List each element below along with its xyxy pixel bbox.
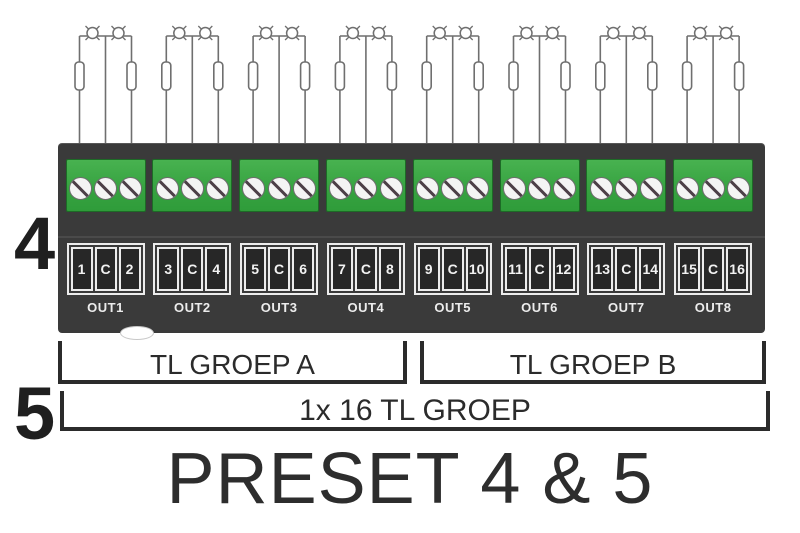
out-label: OUT1	[67, 300, 145, 315]
screw-icon	[676, 177, 699, 200]
ballast-icon	[301, 62, 310, 90]
terminal-cell: 2	[119, 247, 141, 291]
green-terminal-block	[413, 159, 493, 212]
ballast-icon	[561, 62, 570, 90]
ballast-icon	[214, 62, 223, 90]
screw-slot	[442, 178, 464, 200]
lamp-icon	[172, 26, 186, 40]
terminal-cell: C	[355, 247, 377, 291]
lamp-icon	[632, 26, 646, 40]
screw-icon	[268, 177, 291, 200]
screw-icon	[553, 177, 576, 200]
ballast-icon	[422, 62, 431, 90]
out-label: OUT4	[327, 300, 405, 315]
screw-icon	[416, 177, 439, 200]
screw-slot	[330, 178, 352, 200]
lamp-circuit-group	[335, 26, 396, 150]
screw-icon	[727, 177, 750, 200]
screw-icon	[242, 177, 265, 200]
screw-slot	[268, 178, 290, 200]
terminal-group: 5C6	[240, 243, 318, 295]
terminal-cell: 10	[466, 247, 488, 291]
screw-icon	[119, 177, 142, 200]
screw-slot	[529, 178, 551, 200]
terminal-cell: C	[268, 247, 290, 291]
lamp-icon	[86, 26, 100, 40]
screw-icon	[329, 177, 352, 200]
lamp-icon	[606, 26, 620, 40]
group-b-label: TL GROEP B	[510, 351, 677, 380]
screw-slot	[503, 178, 525, 200]
terminal-group: 11C12	[501, 243, 579, 295]
terminal-cell: 15	[678, 247, 700, 291]
screw-icon	[590, 177, 613, 200]
screw-slot	[641, 178, 663, 200]
lamp-icon	[433, 26, 447, 40]
screw-slot	[120, 178, 142, 200]
green-terminal-block	[152, 159, 232, 212]
ballast-icon	[683, 62, 692, 90]
out-label: OUT3	[240, 300, 318, 315]
lamp-icon	[112, 26, 126, 40]
terminal-cell: C	[95, 247, 117, 291]
terminal-group: 9C10	[414, 243, 492, 295]
terminal-cell: 4	[205, 247, 227, 291]
lamp-icon	[546, 26, 560, 40]
screw-slot	[181, 178, 203, 200]
terminal-cell: C	[529, 247, 551, 291]
lamp-icon	[259, 26, 273, 40]
lamp-circuit-group	[75, 26, 136, 150]
screw-icon	[156, 177, 179, 200]
green-terminal-block	[326, 159, 406, 212]
terminal-cell: 3	[157, 247, 179, 291]
terminal-group: 13C14	[587, 243, 665, 295]
screw-icon	[615, 177, 638, 200]
device-seam	[58, 236, 765, 238]
out-label: OUT7	[587, 300, 665, 315]
lamp-icon	[459, 26, 473, 40]
lamp-icon	[285, 26, 299, 40]
wiring-diagram: 1C23C45C67C89C1011C1213C1415C16 OUT1OUT2…	[0, 0, 800, 533]
green-terminal-block	[66, 159, 146, 212]
bracket-full-group: 1x 16 TL GROEP	[60, 391, 770, 431]
bracket-group-b: TL GROEP B	[420, 341, 766, 384]
device-notch	[120, 326, 154, 340]
lamp-icon	[346, 26, 360, 40]
terminal-cell: 14	[639, 247, 661, 291]
screw-icon	[441, 177, 464, 200]
screw-icon	[380, 177, 403, 200]
screw-slot	[156, 178, 178, 200]
screw-slot	[677, 178, 699, 200]
bracket-group-a: TL GROEP A	[58, 341, 407, 384]
screw-slot	[293, 178, 315, 200]
group-a-label: TL GROEP A	[150, 351, 315, 380]
terminal-cell: 5	[244, 247, 266, 291]
lamp-icon	[520, 26, 534, 40]
screw-icon	[69, 177, 92, 200]
terminal-group: 7C8	[327, 243, 405, 295]
screw-slot	[702, 178, 724, 200]
screw-slot	[467, 178, 489, 200]
terminal-cell: 12	[553, 247, 575, 291]
wiring-layer	[0, 0, 800, 150]
green-terminal-block	[500, 159, 580, 212]
green-terminal-block	[239, 159, 319, 212]
ballast-icon	[735, 62, 744, 90]
lamp-circuit-group	[509, 26, 570, 150]
screw-icon	[293, 177, 316, 200]
terminal-cell: 11	[505, 247, 527, 291]
terminal-group: 3C4	[153, 243, 231, 295]
terminal-cell: C	[615, 247, 637, 291]
screw-icon	[702, 177, 725, 200]
ballast-icon	[162, 62, 171, 90]
lamp-circuit-group	[596, 26, 657, 150]
screw-icon	[94, 177, 117, 200]
ballast-icon	[596, 62, 605, 90]
out-label: OUT8	[674, 300, 752, 315]
screw-slot	[355, 178, 377, 200]
terminal-cell: 7	[331, 247, 353, 291]
lamp-circuit-group	[162, 26, 223, 150]
terminal-group: 1C2	[67, 243, 145, 295]
terminal-cell: C	[702, 247, 724, 291]
screw-icon	[181, 177, 204, 200]
terminal-cell: C	[442, 247, 464, 291]
ballast-icon	[648, 62, 657, 90]
screw-slot	[590, 178, 612, 200]
lamp-circuit-group	[422, 26, 483, 150]
screw-slot	[727, 178, 749, 200]
ballast-icon	[509, 62, 518, 90]
lamp-icon	[719, 26, 733, 40]
lamp-icon	[198, 26, 212, 40]
preset-number-4: 4	[14, 207, 55, 281]
preset-number-5: 5	[14, 377, 55, 451]
terminal-cell: 6	[292, 247, 314, 291]
screw-icon	[466, 177, 489, 200]
lamp-icon	[372, 26, 386, 40]
terminal-cell: 13	[591, 247, 613, 291]
ballast-icon	[474, 62, 483, 90]
ballast-icon	[249, 62, 258, 90]
screw-slot	[554, 178, 576, 200]
terminal-cell: 9	[418, 247, 440, 291]
dimmer-device: 1C23C45C67C89C1011C1213C1415C16 OUT1OUT2…	[58, 143, 765, 333]
page-title: PRESET 4 & 5	[20, 443, 800, 515]
lamp-circuit-group	[683, 26, 744, 150]
screw-icon	[354, 177, 377, 200]
ballast-icon	[127, 62, 136, 90]
full-group-label: 1x 16 TL GROEP	[299, 396, 531, 427]
out-label: OUT5	[414, 300, 492, 315]
terminal-cell: 8	[379, 247, 401, 291]
ballast-icon	[387, 62, 396, 90]
screw-icon	[206, 177, 229, 200]
ballast-icon	[75, 62, 84, 90]
out-label: OUT6	[501, 300, 579, 315]
lamp-icon	[693, 26, 707, 40]
terminal-cell: 16	[726, 247, 748, 291]
screw-icon	[503, 177, 526, 200]
screw-slot	[416, 178, 438, 200]
screw-slot	[207, 178, 229, 200]
screw-icon	[640, 177, 663, 200]
terminal-group: 15C16	[674, 243, 752, 295]
screw-slot	[69, 178, 91, 200]
screw-slot	[95, 178, 117, 200]
green-terminal-block	[586, 159, 666, 212]
screw-slot	[615, 178, 637, 200]
screw-icon	[528, 177, 551, 200]
screw-slot	[380, 178, 402, 200]
green-terminal-block	[673, 159, 753, 212]
ballast-icon	[335, 62, 344, 90]
lamp-circuit-group	[249, 26, 310, 150]
out-label: OUT2	[153, 300, 231, 315]
terminal-cell: C	[181, 247, 203, 291]
terminal-cell: 1	[71, 247, 93, 291]
screw-slot	[243, 178, 265, 200]
